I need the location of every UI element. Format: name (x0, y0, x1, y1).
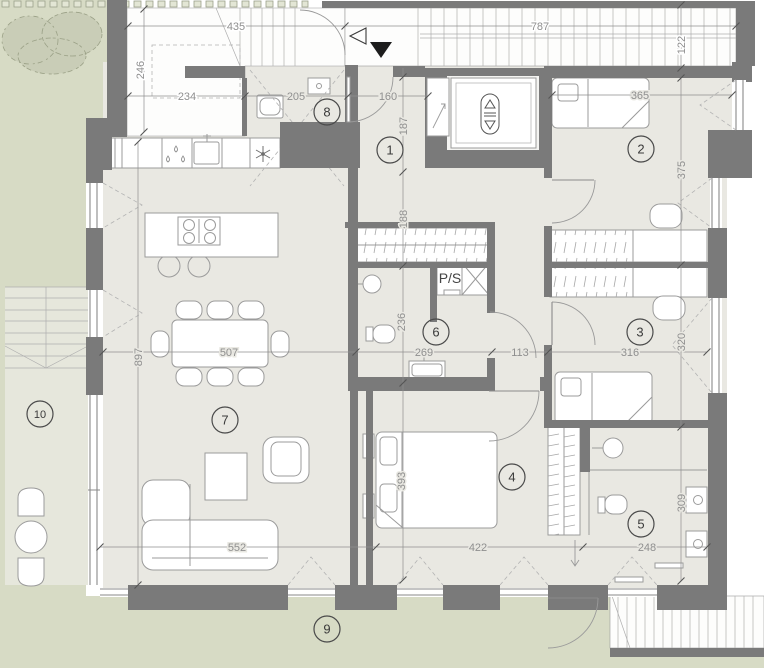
svg-text:6: 6 (432, 325, 439, 340)
svg-text:1: 1 (386, 143, 393, 158)
dim-187: 187 (398, 117, 410, 135)
shelf (655, 563, 683, 568)
dim-435: 435 (227, 21, 245, 33)
svg-text:5: 5 (637, 517, 644, 532)
dim-320: 320 (676, 333, 688, 351)
terrace-table (15, 521, 47, 553)
svg-text:9: 9 (323, 622, 330, 637)
toilet-icon (598, 497, 605, 513)
bed-room3 (555, 372, 652, 424)
bed-room4 (363, 432, 497, 528)
dim-246: 246 (135, 61, 147, 79)
dim-375: 375 (676, 161, 688, 179)
sofa (142, 520, 278, 570)
washer-icon (686, 487, 707, 513)
desk-chair (650, 204, 682, 228)
dim-316: 316 (621, 347, 639, 359)
toilet-icon (366, 327, 373, 341)
dim-787: 787 (531, 21, 549, 33)
coffee-table (205, 453, 247, 500)
svg-text:2: 2 (637, 142, 644, 157)
dim-188: 188 (398, 210, 410, 228)
dim-393: 393 (396, 472, 408, 490)
terrace (5, 287, 88, 586)
bar-stool (188, 255, 210, 277)
dim-507: 507 (220, 347, 238, 359)
dim-113: 113 (511, 347, 529, 359)
dim-269: 269 (415, 347, 433, 359)
dim-309: 309 (676, 494, 688, 512)
desk-chair (653, 296, 685, 320)
kitchen-counter (103, 134, 280, 168)
bar-stool (158, 255, 180, 277)
shelf (308, 78, 330, 94)
washbasin-icon (363, 275, 381, 293)
dim-205: 205 (287, 91, 305, 103)
ps-shaft-label: P/S (439, 270, 462, 286)
dim-422: 422 (469, 542, 487, 554)
dim-236: 236 (396, 313, 408, 331)
svg-text:4: 4 (508, 470, 515, 485)
bed-room2 (552, 78, 649, 128)
dryer-icon (686, 531, 707, 557)
svg-text:10: 10 (34, 409, 46, 421)
dim-552: 552 (228, 542, 246, 554)
floor-plan: 435 787 234 205 160 365 246 122 375 320 … (0, 0, 764, 668)
svg-text:8: 8 (323, 105, 330, 120)
dim-248: 248 (638, 542, 656, 554)
elevator (425, 68, 548, 168)
dim-122: 122 (676, 36, 688, 54)
dim-160: 160 (379, 91, 397, 103)
dim-897: 897 (133, 348, 145, 366)
floor-plan-page: 435 787 234 205 160 365 246 122 375 320 … (0, 0, 764, 668)
dim-234: 234 (178, 91, 196, 103)
dining-table (172, 320, 268, 367)
washbasin-icon (603, 438, 623, 458)
terrace-chair (18, 488, 44, 516)
svg-text:3: 3 (636, 325, 643, 340)
svg-text:7: 7 (221, 413, 228, 428)
sofa-chaise (142, 480, 190, 526)
dim-365: 365 (631, 90, 649, 102)
terrace-chair (18, 558, 44, 586)
